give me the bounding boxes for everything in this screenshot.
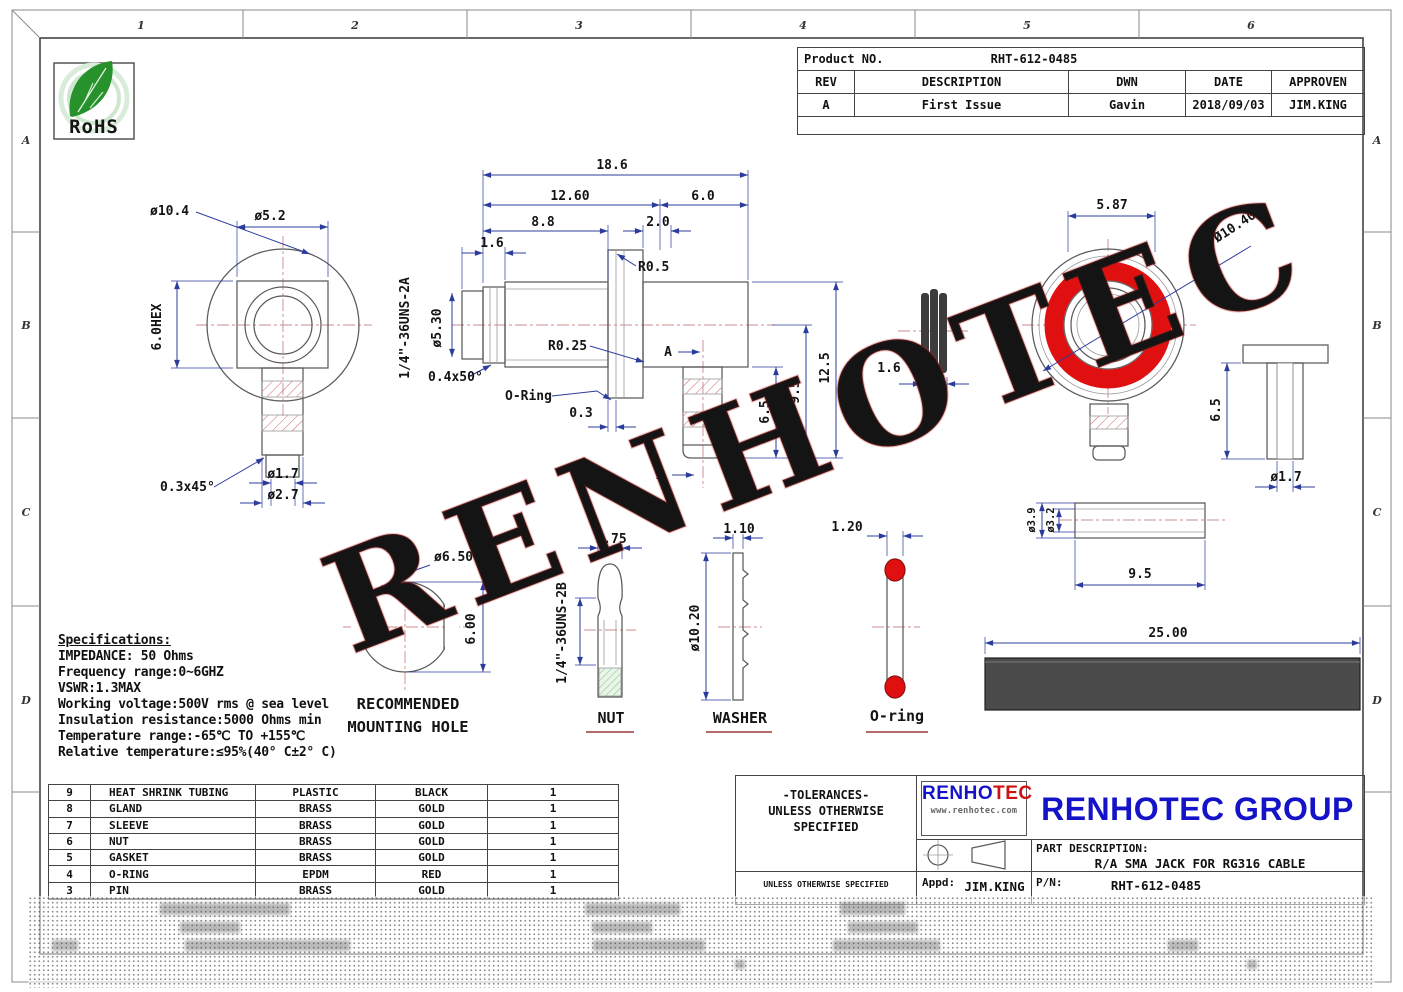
- dim-pin-65: 6.5: [1209, 398, 1224, 421]
- bom-qty: 1: [488, 785, 618, 801]
- bom-item-no: 6: [49, 834, 91, 850]
- zone-left-a: A: [21, 134, 31, 147]
- washer-label: WASHER: [713, 709, 768, 727]
- revision-table: Product NO. RHT-612-0485 REV DESCRIPTION…: [797, 47, 1365, 135]
- rev-description: First Issue: [855, 94, 1069, 116]
- bom-finish: GOLD: [376, 818, 488, 834]
- zone-left-c: C: [22, 506, 31, 519]
- dim-ring-587: 5.87: [1096, 198, 1127, 213]
- bom-material: BRASS: [256, 834, 376, 850]
- rev-empty-row: [798, 117, 1364, 134]
- dim-main-03: 0.3: [569, 406, 592, 421]
- dim-main-dia530: ø5.30: [430, 308, 445, 347]
- dim-pin-dia17: ø1.7: [1270, 470, 1301, 485]
- bom-qty: 1: [488, 866, 618, 882]
- rev-header-rev: REV: [798, 71, 855, 93]
- rev-header-approven: APPROVEN: [1272, 71, 1364, 93]
- view-heat-shrink: 25.00: [985, 626, 1360, 710]
- appd-value: JIM.KING: [958, 879, 1031, 894]
- part-description-label: PART DESCRIPTION:: [1036, 842, 1149, 855]
- rohs-text: RoHS: [69, 116, 119, 138]
- dim-shrink-2500: 25.00: [1148, 626, 1187, 641]
- dim-main-r05: R0.5: [638, 260, 669, 275]
- appd-label: Appd:: [922, 876, 955, 889]
- view-sleeve: ø3.9 ø3.2 9.5: [1026, 503, 1225, 590]
- rev-dwn: Gavin: [1069, 94, 1186, 116]
- tolerances-line-1: -TOLERANCES-: [736, 788, 916, 802]
- rev-header-row: REV DESCRIPTION DWN DATE APPROVEN: [798, 71, 1364, 94]
- renhotec-logo: RENHOTEC www.renhotec.com: [921, 781, 1027, 836]
- dim-front-dia17: ø1.7: [267, 467, 298, 482]
- bom-qty: 1: [488, 818, 618, 834]
- rev-header-dwn: DWN: [1069, 71, 1186, 93]
- bom-finish: GOLD: [376, 850, 488, 866]
- zone-top-5: 5: [1023, 19, 1031, 32]
- bom-qty: 1: [488, 801, 618, 817]
- dim-main-186: 18.6: [596, 158, 627, 173]
- nut-label: NUT: [597, 709, 624, 727]
- bom-item-no: 5: [49, 850, 91, 866]
- dim-main-60: 6.0: [691, 189, 715, 204]
- zone-right-c: C: [1373, 506, 1382, 519]
- pn-value: RHT-612-0485: [1081, 878, 1231, 893]
- dim-main-16: 1.6: [480, 236, 504, 251]
- spec-humidity: Relative temperature:≤95%(40° C±2° C): [58, 745, 388, 761]
- product-no-label: Product NO.: [798, 52, 939, 66]
- dim-front-dia104: ø10.4: [150, 204, 189, 219]
- specs-title: Specifications:: [58, 633, 388, 649]
- zone-right-d: D: [1371, 694, 1382, 707]
- tolerances-line-2: UNLESS OTHERWISE: [736, 804, 916, 818]
- bom-item-no: 9: [49, 785, 91, 801]
- rev-header-date: DATE: [1186, 71, 1272, 93]
- dim-main-ch0450: 0.4x50°: [428, 370, 483, 385]
- rohs-logo: RoHS: [54, 61, 134, 139]
- label-oring-leader: O-Ring: [505, 389, 552, 404]
- specifications: Specifications: IMPEDANCE: 50 Ohms Frequ…: [58, 633, 388, 761]
- bom-material: EPDM: [256, 866, 376, 882]
- dim-oring-120: 1.20: [831, 520, 862, 535]
- dim-main-88: 8.8: [531, 215, 555, 230]
- bom-material: BRASS: [256, 818, 376, 834]
- bom-part-name: HEAT SHRINK TUBING: [91, 785, 256, 801]
- zone-top-6: 6: [1247, 19, 1255, 32]
- rev-value: A: [798, 94, 855, 116]
- dim-sleeve-dia39: ø3.9: [1026, 507, 1038, 532]
- renhotec-logo-text: RENHOTEC: [922, 782, 1026, 806]
- watermark: RENHOTEC: [303, 160, 1335, 686]
- zone-left-d: D: [20, 694, 31, 707]
- bom-material: BRASS: [256, 850, 376, 866]
- dim-main-1260: 12.60: [550, 189, 589, 204]
- dim-front-dia27: ø2.7: [267, 488, 298, 503]
- zone-left-b: B: [20, 319, 30, 332]
- spec-frequency: Frequency range:0~6GHZ: [58, 665, 388, 681]
- title-block: -TOLERANCES- UNLESS OTHERWISE SPECIFIED …: [735, 775, 1365, 905]
- bom-material: PLASTIC: [256, 785, 376, 801]
- logo-renho: RENHO: [922, 783, 993, 804]
- bom-qty: 1: [488, 834, 618, 850]
- redacted-band: [28, 896, 1375, 988]
- dim-sleeve-95: 9.5: [1128, 567, 1151, 582]
- bom-part-name: SLEEVE: [91, 818, 256, 834]
- bom-finish: GOLD: [376, 834, 488, 850]
- dim-front-dia52: ø5.2: [254, 209, 285, 224]
- bom-material: BRASS: [256, 801, 376, 817]
- zone-top-4: 4: [799, 19, 807, 32]
- dim-main-thread: 1/4"-36UNS-2A: [398, 277, 413, 379]
- zone-top-1: 1: [137, 19, 145, 32]
- logo-tec: TEC: [993, 783, 1033, 804]
- renhotec-url: www.renhotec.com: [922, 806, 1026, 816]
- company-name: RENHOTEC GROUP: [1031, 784, 1364, 834]
- spec-vswr: VSWR:1.3MAX: [58, 681, 388, 697]
- bom-qty: 1: [488, 850, 618, 866]
- bom-part-name: GASKET: [91, 850, 256, 866]
- zone-top-2: 2: [350, 19, 359, 32]
- spec-voltage: Working voltage:500V rms @ sea level: [58, 697, 388, 713]
- zone-top-3: 3: [575, 19, 583, 32]
- bom-item-no: 8: [49, 801, 91, 817]
- pn-label: P/N:: [1036, 876, 1063, 889]
- product-no-value: RHT-612-0485: [939, 52, 1129, 66]
- bom-item-no: 7: [49, 818, 91, 834]
- dim-washer-dia1020: ø10.20: [688, 604, 703, 651]
- zone-right-b: B: [1371, 319, 1381, 332]
- section-a-top: A: [664, 345, 672, 360]
- rev-data-row: A First Issue Gavin 2018/09/03 JIM.KING: [798, 94, 1364, 117]
- bom-part-name: NUT: [91, 834, 256, 850]
- rev-approven: JIM.KING: [1272, 94, 1364, 116]
- view-front: ø10.4 ø5.2 6.0HEX 0.3x45° ø1.7 ø2.7: [150, 204, 372, 508]
- dim-main-r025: R0.25: [548, 339, 587, 354]
- dim-front-chamfer: 0.3x45°: [160, 480, 215, 495]
- bom-finish: GOLD: [376, 801, 488, 817]
- bom-part-name: O-RING: [91, 866, 256, 882]
- spec-insulation: Insulation resistance:5000 Ohms min: [58, 713, 388, 729]
- tolerances-line-3: SPECIFIED: [736, 820, 916, 834]
- part-description-value: R/A SMA JACK FOR RG316 CABLE: [1036, 856, 1364, 871]
- drawing-sheet: 1 2 3 4 5 6 A B C D A B C D RoHS: [0, 0, 1403, 992]
- view-oring-side: 1.20 O-ring: [831, 520, 928, 733]
- bom-table: 9HEAT SHRINK TUBINGPLASTICBLACK1 8GLANDB…: [48, 784, 619, 900]
- zone-right-a: A: [1372, 134, 1382, 147]
- dim-sleeve-dia32: ø3.2: [1045, 507, 1057, 532]
- spec-impedance: IMPEDANCE: 50 Ohms: [58, 649, 388, 665]
- dim-main-20: 2.0: [646, 215, 670, 230]
- view-pin: 6.5 ø1.7: [1209, 345, 1328, 492]
- bom-part-name: GLAND: [91, 801, 256, 817]
- rev-header-description: DESCRIPTION: [855, 71, 1069, 93]
- tolerances-small-note: UNLESS OTHERWISE SPECIFIED: [736, 880, 916, 889]
- product-row: Product NO. RHT-612-0485: [798, 48, 1364, 71]
- bom-finish: RED: [376, 866, 488, 882]
- spec-temperature: Temperature range:-65℃ TO +155℃: [58, 729, 388, 745]
- bom-finish: BLACK: [376, 785, 488, 801]
- bom-item-no: 4: [49, 866, 91, 882]
- rev-date: 2018/09/03: [1186, 94, 1272, 116]
- oring-label: O-ring: [870, 707, 924, 725]
- dim-front-hex: 6.0HEX: [150, 303, 165, 350]
